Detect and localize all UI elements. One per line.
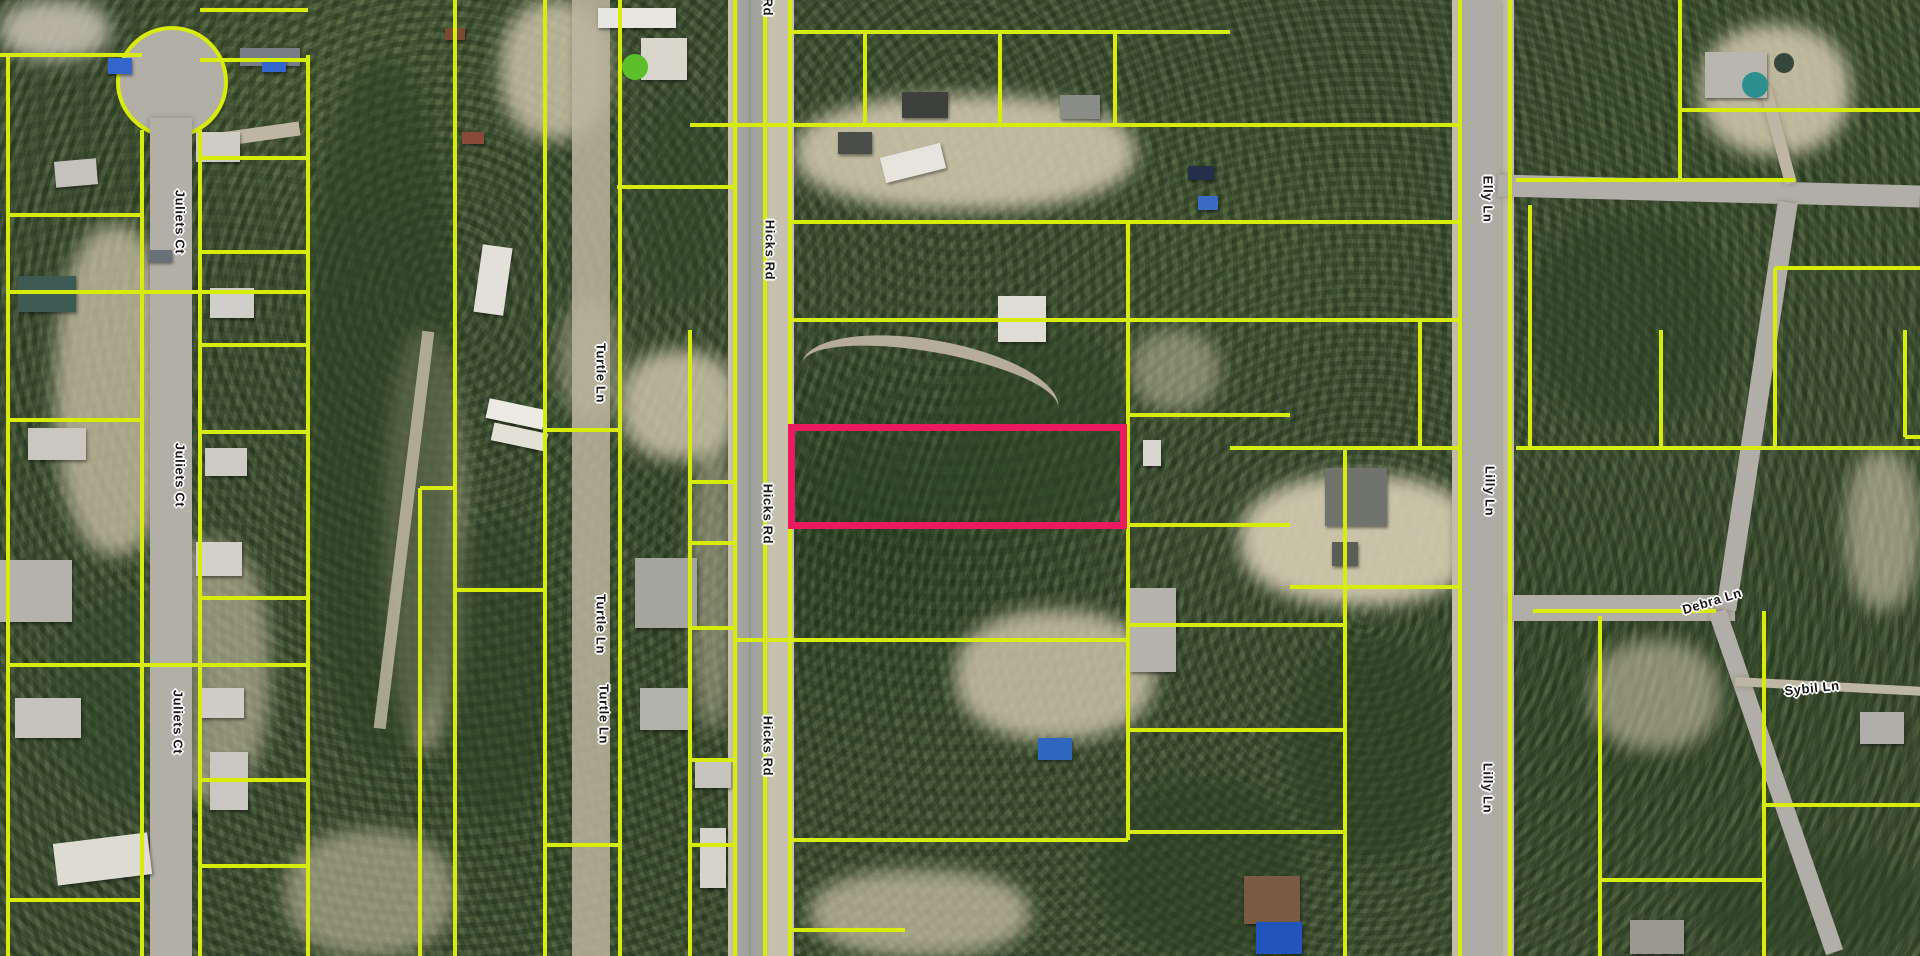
building: [641, 38, 687, 80]
road-debra-ln: [1510, 595, 1735, 621]
building: [1325, 468, 1387, 526]
building: [640, 688, 692, 730]
parcel-boundary: [543, 0, 547, 956]
building: [598, 8, 676, 28]
parcel-boundary: [1678, 0, 1682, 180]
terrain-patch: [810, 870, 1030, 956]
building: [1244, 876, 1300, 924]
feature-pool: [1742, 72, 1768, 98]
building: [1038, 738, 1072, 760]
terrain-patch: [1590, 640, 1720, 750]
terrain-patch: [1290, 640, 1450, 860]
parcel-boundary: [306, 55, 310, 956]
parcel-boundary: [790, 318, 1460, 322]
road-turtle-ln: [572, 0, 610, 956]
satellite-parcel-map[interactable]: Juliets CtJuliets CtJuliets CtJuliets Ct…: [0, 0, 1920, 956]
building: [18, 276, 76, 312]
parcel-boundary: [790, 220, 1460, 224]
parcel-boundary: [200, 8, 308, 12]
road-debra-ln-upper-diagonal: [1716, 201, 1797, 611]
parcel-boundary: [6, 55, 10, 956]
parcel-boundary: [788, 30, 1230, 34]
terrain-patch: [955, 610, 1155, 740]
building: [700, 828, 726, 888]
building: [1060, 95, 1100, 119]
parcel-boundary: [1126, 222, 1130, 840]
building: [462, 132, 484, 144]
building: [473, 244, 512, 316]
building: [196, 542, 242, 576]
parcel-boundary: [8, 213, 142, 217]
terrain-patch: [440, 520, 550, 820]
parcel-boundary: [1230, 446, 1460, 450]
building: [210, 752, 248, 810]
terrain-patch: [1130, 330, 1220, 410]
building: [1332, 542, 1358, 566]
road-hicks-rd-centerline: [749, 0, 751, 956]
building: [108, 58, 132, 74]
road-elly-ln-branch: [1498, 174, 1920, 207]
road-lilly-ln: [1463, 0, 1501, 956]
parcel-boundary: [1418, 320, 1422, 448]
parcel-boundary: [200, 343, 308, 347]
building: [998, 296, 1046, 342]
building: [15, 698, 81, 738]
building: [635, 558, 697, 628]
building: [445, 28, 465, 40]
feature-round-pool-green: [622, 54, 648, 80]
building: [148, 250, 172, 262]
parcel-boundary: [1128, 413, 1290, 417]
parcel-boundary: [1516, 446, 1920, 450]
terrain-patch: [640, 100, 720, 300]
building: [1256, 922, 1302, 954]
building: [205, 448, 247, 476]
parcel-boundary: [1113, 32, 1117, 125]
parcel-boundary: [8, 898, 142, 902]
terrain-patch: [285, 830, 455, 956]
building: [902, 92, 948, 118]
building: [262, 58, 286, 72]
building: [1198, 196, 1218, 210]
road-sybil-ln: [1735, 677, 1920, 696]
building: [210, 288, 254, 318]
feature-trampoline: [1774, 53, 1794, 73]
building: [196, 132, 240, 162]
road-juliets-ct: [150, 118, 192, 956]
building: [1188, 166, 1214, 180]
terrain-patch: [1845, 450, 1920, 610]
building: [1860, 712, 1904, 744]
building: [1143, 440, 1161, 466]
parcel-boundary: [1905, 435, 1920, 439]
building: [28, 428, 86, 460]
building: [200, 688, 244, 718]
building: [838, 132, 872, 154]
building: [1130, 588, 1176, 672]
building: [53, 832, 152, 885]
parcel-boundary: [618, 0, 622, 956]
building: [695, 758, 731, 788]
parcel-boundary: [1903, 330, 1907, 437]
terrain-patch: [1530, 220, 1730, 420]
parcel-boundary: [788, 838, 1128, 842]
parcel-boundary: [1775, 266, 1920, 270]
building: [54, 158, 98, 188]
terrain-patch: [0, 0, 110, 60]
parcel-boundary: [200, 430, 308, 434]
highlighted-parcel[interactable]: [788, 424, 1127, 529]
building: [0, 560, 72, 622]
parcel-boundary: [200, 250, 308, 254]
building: [1630, 920, 1684, 954]
